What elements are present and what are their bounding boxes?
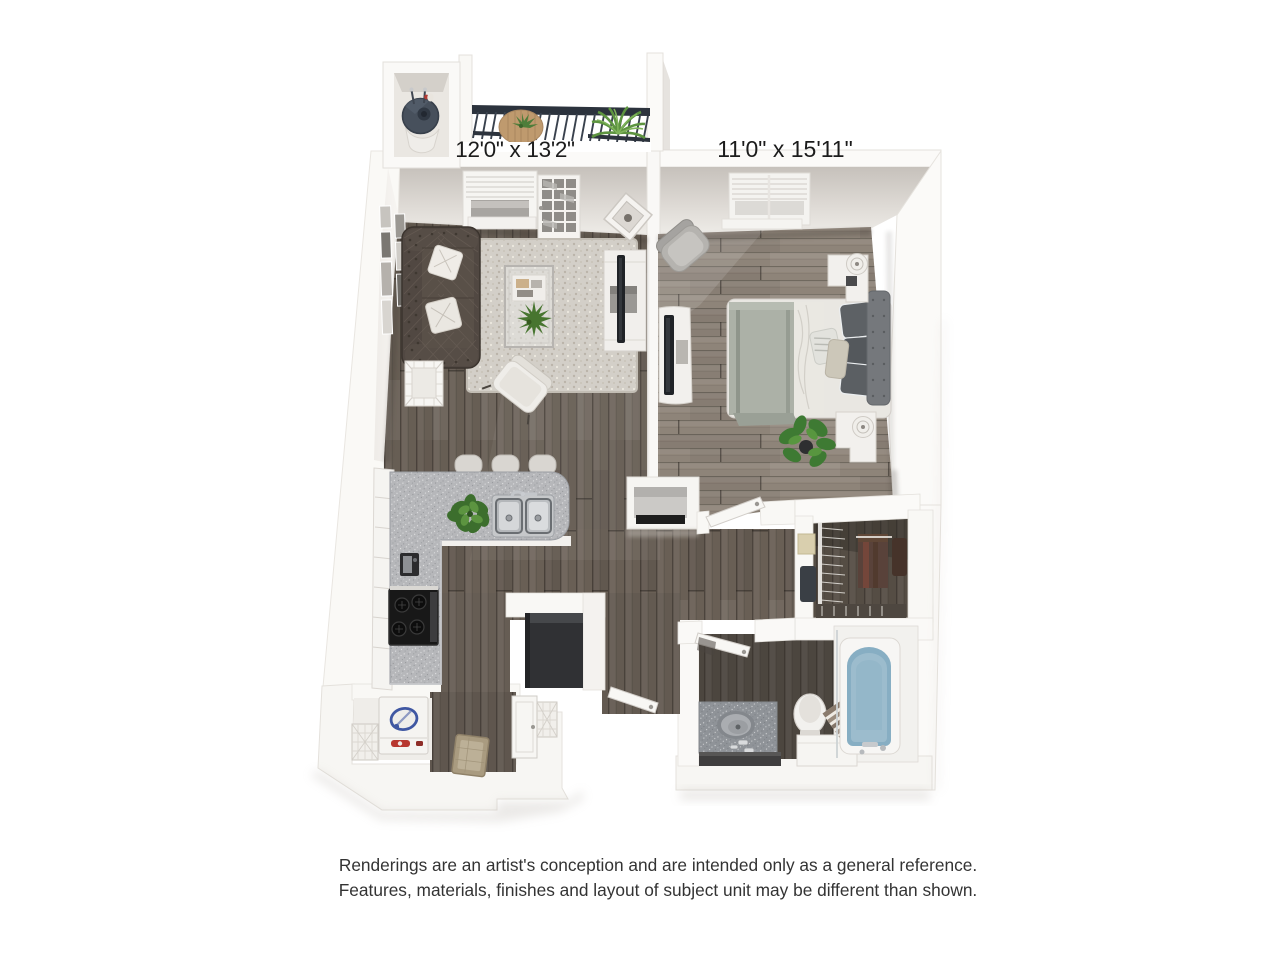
svg-text:Features, materials, finishes: Features, materials, finishes and layout… — [339, 880, 977, 900]
svg-text:Renderings are an artist's con: Renderings are an artist's conception an… — [339, 855, 977, 875]
svg-text:12'0" x 13'2": 12'0" x 13'2" — [455, 137, 575, 162]
svg-text:11'0" x 15'11": 11'0" x 15'11" — [717, 136, 853, 162]
